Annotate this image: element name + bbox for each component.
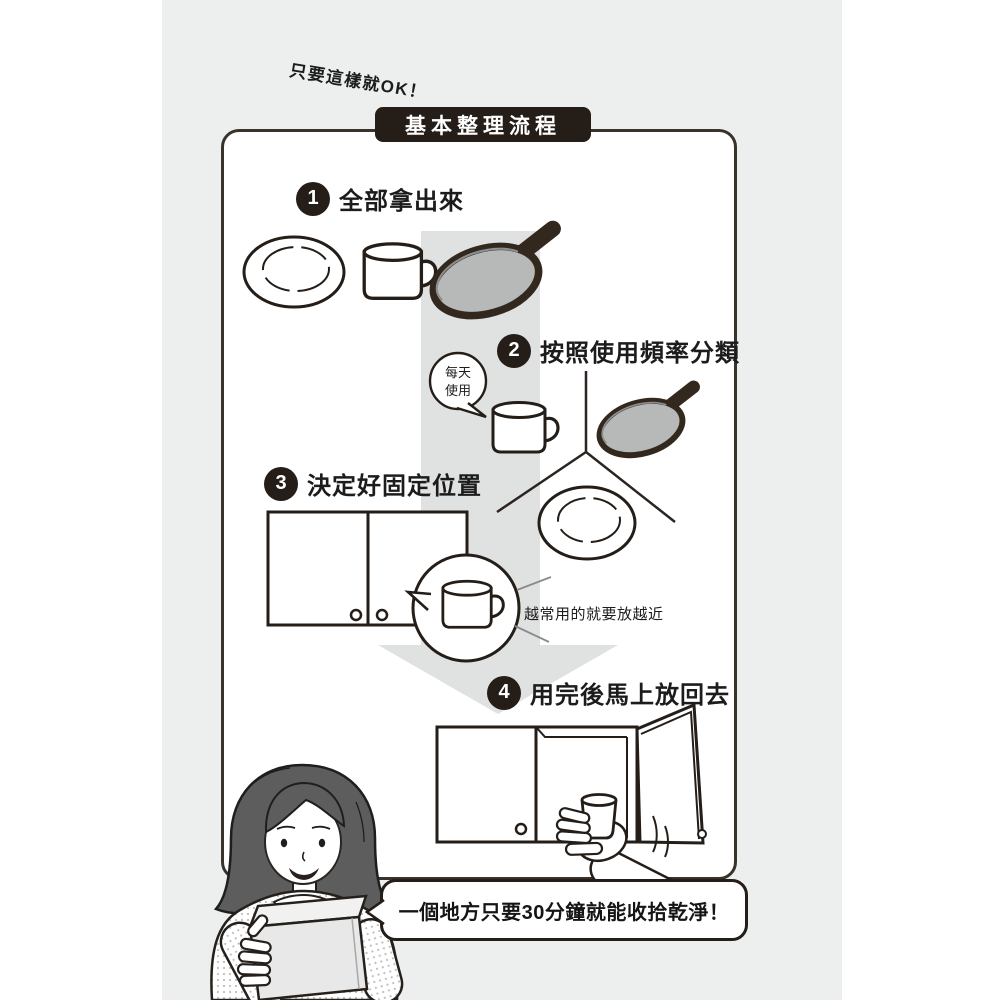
plate-icon [244,237,344,307]
woman-illustration [211,765,406,1000]
step-4-badge: 4 [487,676,521,710]
step-1-label: 全部拿出來 [339,181,464,216]
step-1: 1 全部拿出來 [296,181,464,216]
page-title: 基本整理流程 [375,107,591,142]
step-4: 4 用完後馬上放回去 [487,675,730,710]
speech-bubble-tail-icon [364,897,386,927]
daily-use-bubble-text: 每天 使用 [430,364,486,400]
step-3-badge: 3 [264,467,298,501]
step-2-label: 按照使用頻率分類 [540,333,740,368]
step-3-label: 決定好固定位置 [307,466,482,501]
step-3: 3 決定好固定位置 [264,466,482,501]
step-2-badge: 2 [497,334,531,368]
step-2: 2 按照使用頻率分類 [497,333,740,368]
speech-bubble-text: 一個地方只要30分鐘就能收拾乾淨！ [399,896,730,925]
mug-icon [493,403,558,453]
placement-note: 越常用的就要放越近 [524,603,664,624]
speech-bubble: 一個地方只要30分鐘就能收拾乾淨！ [380,879,748,941]
frying-pan-icon [593,377,703,464]
plate-icon [539,487,635,559]
step-1-badge: 1 [296,182,330,216]
illustration-layer [0,0,1000,1000]
step-4-label: 用完後馬上放回去 [530,675,730,710]
